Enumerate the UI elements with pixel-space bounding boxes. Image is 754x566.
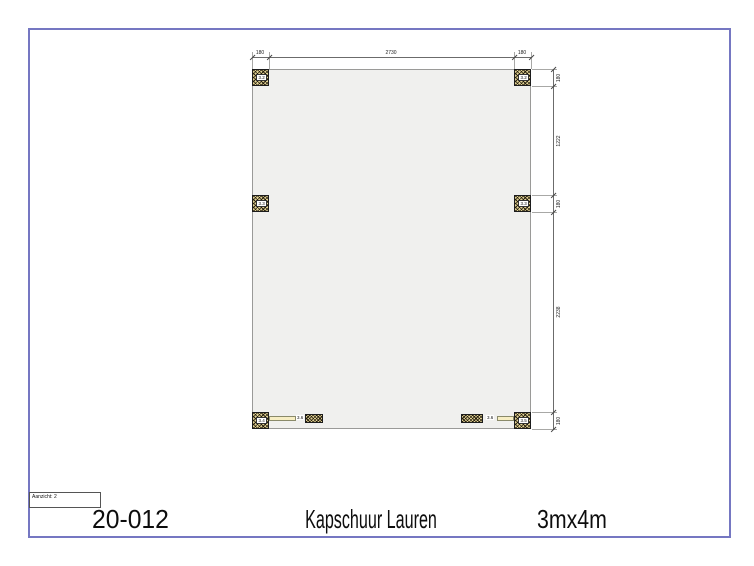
- post-bottom-left: 3.4: [252, 412, 269, 429]
- post-label: 3.3: [256, 200, 267, 207]
- extension-line: [531, 52, 532, 69]
- dim-label-right-5: 180: [556, 417, 562, 425]
- post-top-right: 3.2: [514, 69, 531, 86]
- post-label: 3.3: [518, 200, 529, 207]
- drawing-sheet: 3.2 3.2 3.3 3.3 3.4 3.5 3.6 3.6 180 2730…: [0, 0, 754, 566]
- dim-label-top-left: 180: [256, 50, 264, 56]
- floor-plan-slab: [252, 69, 531, 429]
- dim-label-right-4: 2238: [556, 306, 562, 317]
- dim-label-right-2: 1222: [556, 135, 562, 146]
- view-label-box: Aanzicht: 2: [29, 492, 101, 508]
- extension-line: [269, 52, 270, 69]
- dim-label-top-middle: 2730: [385, 50, 396, 56]
- post-mid-right: 3.3: [514, 195, 531, 212]
- dim-label-right-1: 180: [556, 74, 562, 82]
- post-mid-left: 3.3: [252, 195, 269, 212]
- dimension-line-right: [553, 69, 554, 429]
- dim-label-right-3: 180: [556, 200, 562, 208]
- beam-label-right: 3.6: [486, 415, 494, 420]
- extension-line: [252, 52, 253, 69]
- post-top-left: 3.2: [252, 69, 269, 86]
- project-size: 3mx4m: [537, 506, 607, 532]
- post-label: 3.5: [518, 417, 529, 424]
- front-brace-left: [305, 414, 323, 423]
- post-bottom-right: 3.5: [514, 412, 531, 429]
- extension-line: [514, 52, 515, 69]
- dim-label-top-right: 180: [518, 50, 526, 56]
- front-beam-right: [497, 416, 514, 421]
- front-beam-left: [269, 416, 296, 421]
- post-label: 3.4: [256, 417, 267, 424]
- view-label: Aanzicht: 2: [32, 494, 57, 500]
- dimension-line-top: [252, 57, 531, 58]
- project-title: Kapschuur Lauren: [305, 506, 437, 532]
- post-label: 3.2: [256, 74, 267, 81]
- beam-label-left: 3.6: [296, 415, 304, 420]
- post-label: 3.2: [518, 74, 529, 81]
- front-brace-right: [461, 414, 483, 423]
- project-number: 20-012: [92, 506, 169, 532]
